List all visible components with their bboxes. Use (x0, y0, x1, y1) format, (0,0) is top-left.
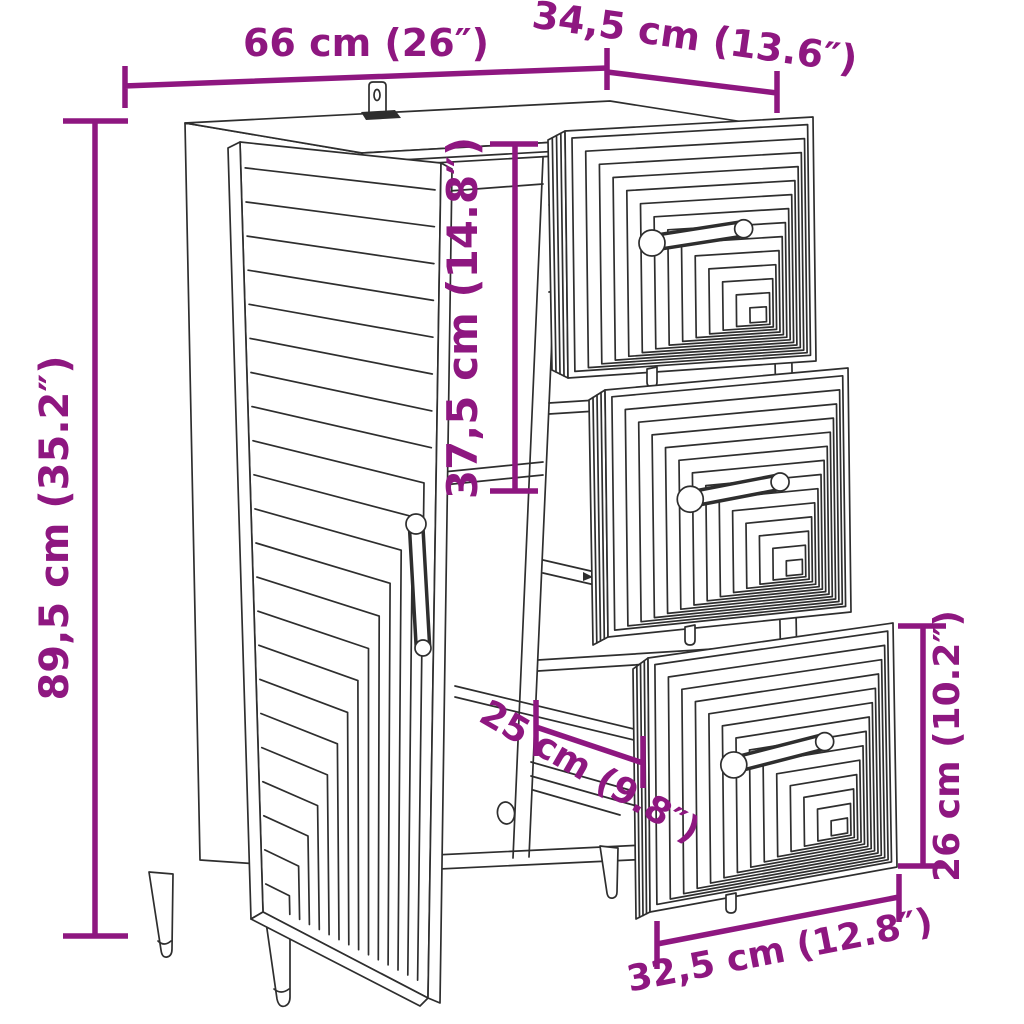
drawer-front (548, 117, 816, 387)
wall-bracket (369, 82, 386, 113)
dimension-upper-inner-height-label: 37,5 cm (14.8″) (438, 137, 487, 499)
dimension-drawer-height-label: 26 cm (10.2″) (927, 610, 968, 882)
dimension-drawer-width-label: 32,5 cm (12.8″) (623, 901, 936, 1001)
open-door (228, 142, 452, 1006)
drawer-front (633, 623, 897, 919)
cabinet-leg (149, 872, 173, 957)
dimension-diagram: 66 cm (26″) 34,5 cm (13.6″) 89,5 cm (35.… (0, 0, 1024, 1024)
dimension-height-label: 89,5 cm (35.2″) (32, 355, 78, 700)
drawer-front (589, 368, 851, 645)
cabinet-line-drawing: 66 cm (26″) 34,5 cm (13.6″) 89,5 cm (35.… (0, 0, 1024, 1024)
dimension-width-label: 66 cm (26″) (243, 21, 489, 65)
cabinet-leg (600, 846, 618, 898)
